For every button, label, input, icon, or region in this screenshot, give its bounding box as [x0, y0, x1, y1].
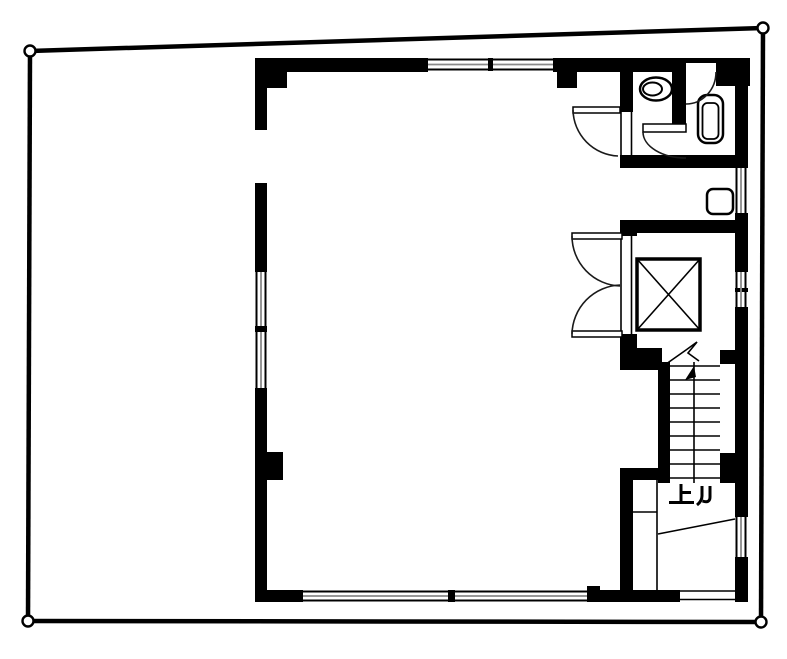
entrance-opening	[680, 591, 735, 600]
double-swing-door	[572, 233, 622, 337]
wc-door	[643, 124, 686, 158]
hand-wash-sink	[707, 189, 733, 214]
floor-plan: 上ル	[0, 0, 787, 659]
water-heater-tank	[698, 95, 723, 143]
window-right-upper	[737, 167, 746, 213]
elevator-car	[637, 259, 700, 330]
boundary-marker	[756, 617, 767, 628]
toilet	[640, 78, 672, 101]
staircase	[658, 342, 735, 483]
floor-plan-drawing: 上ル	[0, 0, 787, 659]
boundary-marker	[25, 46, 36, 57]
boundary-marker	[23, 616, 34, 627]
elevator-hall	[572, 220, 737, 370]
stair-direction-label: 上ル	[668, 486, 712, 511]
window-bottom	[303, 590, 587, 602]
window-top	[428, 58, 553, 71]
boundary-marker	[758, 23, 769, 34]
window-right-lower	[737, 517, 746, 557]
stair-treads	[670, 366, 720, 478]
window-left	[255, 272, 267, 388]
wc-lobby-door	[573, 107, 620, 156]
stair-landing-room: 上ル	[620, 468, 735, 602]
